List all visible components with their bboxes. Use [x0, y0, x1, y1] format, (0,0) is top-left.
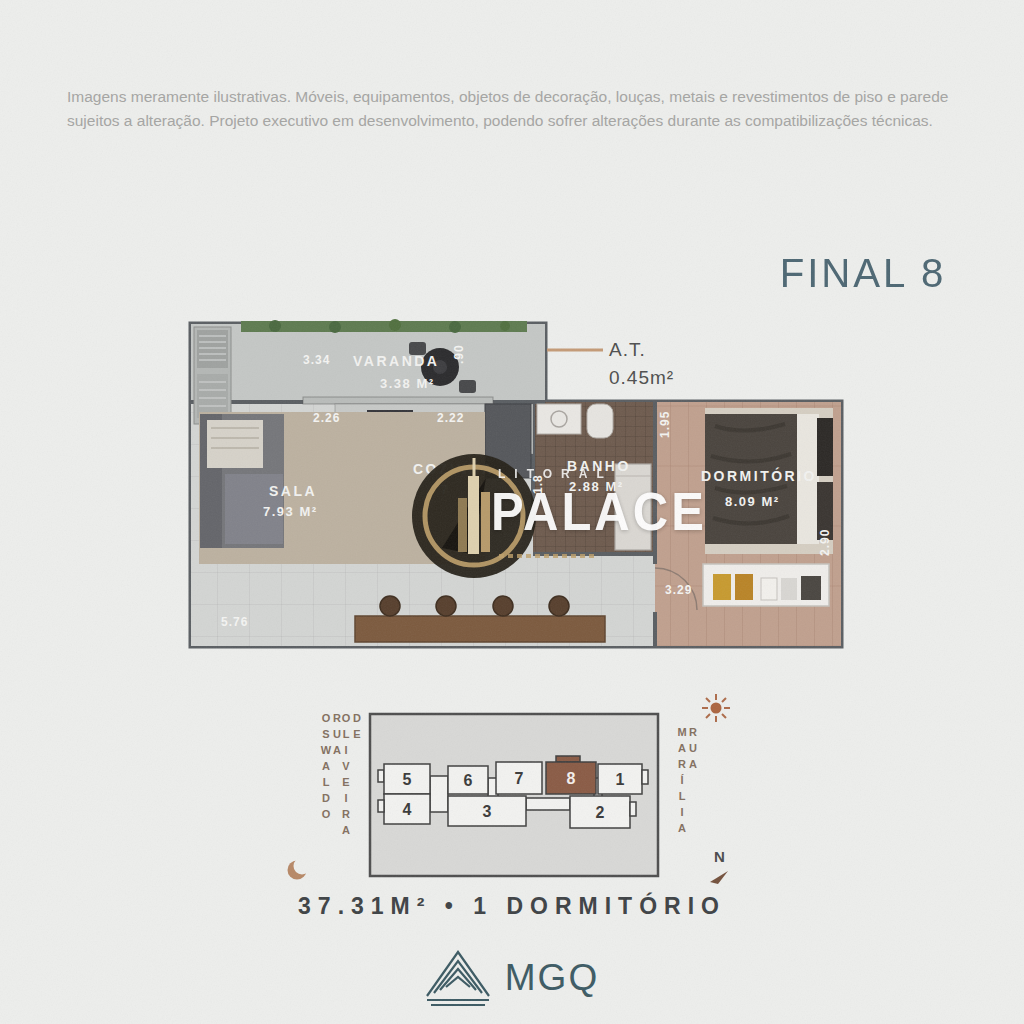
- utility-closet: [194, 327, 231, 424]
- unit-6: 6: [464, 772, 473, 789]
- key-plan: 5 6 7 8 1 4 3 2: [368, 712, 660, 878]
- at-value: 0.45m²: [609, 367, 674, 388]
- dim-dorm-bottom: 3.29: [665, 583, 692, 597]
- at-label: A.T.: [609, 339, 646, 360]
- unit-summary: 37.31M² • 1 DORMITÓRIO: [0, 893, 1024, 920]
- compass-arrow-icon: [708, 866, 730, 886]
- area-varanda: 3.38 M²: [380, 376, 435, 391]
- dim-cozinha-top: 2.22: [437, 411, 464, 425]
- unit-5: 5: [403, 771, 412, 788]
- area-sala: 7.93 M²: [263, 504, 318, 519]
- dim-dorm-right: 2.90: [818, 529, 832, 556]
- street-label-oliveira: DE OLIVEIRA: [340, 712, 362, 887]
- room-cozinha: COZINHA: [413, 461, 494, 477]
- unit-title: FINAL 8: [780, 250, 946, 297]
- room-sala: SALA: [269, 483, 317, 499]
- planter-greenery: [241, 319, 527, 333]
- developer-name: MGQ: [505, 957, 599, 999]
- unit-1: 1: [616, 771, 625, 788]
- dim-varanda-depth: .90: [452, 344, 466, 364]
- moon-icon: [284, 856, 312, 884]
- room-dormitorio: DORMITÓRIO: [701, 467, 817, 484]
- floor-plan: A.T. 0.45m² 3.34 VARANDA 3.38 M² .90 2.2…: [185, 316, 847, 656]
- street-label-oswaldo: RUA OSWALDO: [320, 712, 342, 887]
- area-dormitorio: 8.09 M²: [725, 494, 780, 509]
- key-plan-units: [378, 756, 648, 828]
- dim-banho-depth: 1.8: [531, 474, 545, 494]
- room-banho: BANHO: [567, 458, 631, 474]
- area-banho: 2.88 M²: [569, 479, 624, 494]
- room-varanda: VARANDA: [353, 353, 439, 369]
- street-label-marilia: RUA MARÍLIA: [676, 726, 698, 891]
- sliding-door: [303, 397, 493, 404]
- unit-7: 7: [515, 770, 524, 787]
- dim-sala-bottom: 5.76: [221, 615, 248, 629]
- compass-north-label: N: [714, 848, 726, 865]
- sofa: [200, 414, 284, 548]
- dim-sala-top: 2.26: [313, 411, 340, 425]
- unit-8-highlighted: 8: [567, 770, 576, 787]
- unit-2: 2: [596, 804, 605, 821]
- sun-icon: [700, 692, 732, 724]
- flyer-page: Imagens meramente ilustrativas. Móveis, …: [0, 0, 1024, 1024]
- area-cozinha: 7: [441, 482, 450, 497]
- unit-3: 3: [483, 803, 492, 820]
- developer-logo: MGQ: [0, 948, 1024, 1008]
- dim-varanda-width: 3.34: [303, 353, 330, 367]
- unit-4: 4: [403, 801, 412, 818]
- disclaimer-text: Imagens meramente ilustrativas. Móveis, …: [67, 85, 963, 133]
- dim-dorm-left: 1.95: [658, 411, 672, 438]
- dresser: [703, 564, 829, 606]
- pyramid-logo-icon: [425, 948, 491, 1008]
